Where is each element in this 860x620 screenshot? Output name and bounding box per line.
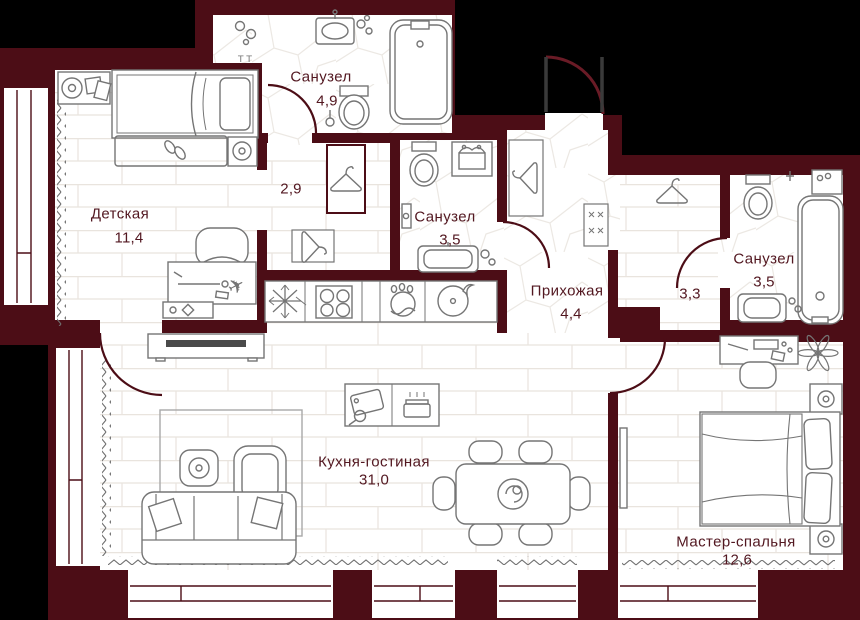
bathtub-icon — [390, 20, 452, 124]
closet-icon — [327, 145, 365, 213]
room-label-master: Мастер-спальня — [676, 535, 795, 550]
floor-plan-svg: ✈ Т Т — [0, 0, 860, 620]
room-label-sanuzel-right: Санузел — [733, 252, 794, 267]
toilet-icon — [339, 86, 369, 129]
curtain-icon — [57, 94, 66, 326]
towel-hooks-icon: Т Т — [237, 55, 252, 65]
room-area-sanuzel-right: 3,5 — [753, 275, 774, 290]
curtain-icon — [102, 360, 111, 556]
desk-icon: ✈ — [168, 262, 256, 304]
room-area-sanuzel-top: 4,9 — [316, 94, 337, 109]
curtain-icon — [497, 556, 577, 565]
bed-icon — [112, 70, 258, 138]
room-label-prihozhaya: Прихожая — [531, 284, 604, 299]
sofa-icon — [142, 492, 296, 564]
tv-cabinet-icon — [163, 302, 213, 318]
room-area-master: 12,6 — [722, 553, 752, 568]
room-floor-corridor-33[interactable] — [618, 175, 720, 330]
room-label-detskaya: Детская — [91, 207, 149, 222]
tv-stand-icon — [148, 334, 264, 361]
window-bottom-1 — [128, 570, 333, 618]
chair-icon — [740, 362, 776, 388]
doormat-icon — [584, 204, 608, 246]
toilet-icon — [744, 175, 772, 219]
room-label-sanuzel-mid: Санузел — [414, 210, 475, 225]
room-label-kitchen-living: Кухня-гостиная — [318, 455, 430, 470]
room-area-prihozhaya: 4,4 — [560, 307, 581, 322]
room-area-kitchen-living: 31,0 — [359, 473, 389, 488]
pouf-icon — [180, 450, 218, 486]
room-label-sanuzel-top: Санузел — [290, 70, 351, 85]
window-left-living — [56, 348, 100, 566]
closet-icon — [509, 140, 543, 216]
laundry-basket-icon — [452, 142, 492, 176]
nightstand-icon — [58, 72, 111, 104]
closet-icon — [292, 230, 334, 262]
desk-icon — [720, 336, 798, 364]
mirror-icon — [620, 428, 627, 508]
double-bed-icon — [700, 412, 840, 526]
window-bottom-3 — [497, 570, 578, 618]
bedside-table-icon — [228, 137, 257, 166]
nightstand-icon — [810, 524, 842, 554]
dining-table-icon — [456, 464, 570, 524]
room-area-detskaya: 11,4 — [115, 231, 144, 246]
floor-plan: ✈ Т Т — [0, 0, 860, 620]
window-bottom-2 — [372, 570, 455, 618]
room-area-corridor-33: 3,3 — [679, 287, 700, 302]
nightstand-icon — [810, 384, 842, 414]
window-left-children — [4, 88, 48, 305]
room-area-corridor-29: 2,9 — [280, 182, 301, 197]
kitchen-island-icon — [345, 384, 439, 426]
room-area-sanuzel-mid: 3,5 — [439, 233, 460, 248]
chair-icon — [196, 228, 248, 266]
water-heater-icon — [402, 204, 411, 228]
toilet-icon — [410, 142, 438, 186]
bathtub-icon — [798, 196, 843, 324]
window-bottom-master — [618, 570, 758, 618]
